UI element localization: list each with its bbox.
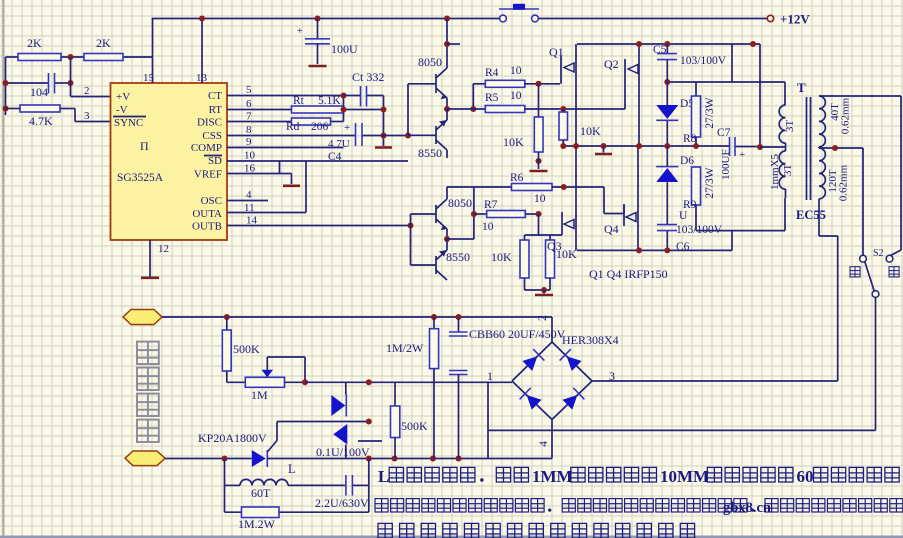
svg-text:6: 6 (246, 98, 252, 110)
svg-text:10: 10 (510, 90, 522, 102)
svg-text:1MM: 1MM (532, 467, 573, 486)
svg-text:Q4: Q4 (604, 222, 619, 236)
svg-text:0.1U/100V: 0.1U/100V (316, 445, 370, 459)
svg-text:C7: C7 (717, 127, 731, 139)
svg-text:10: 10 (482, 221, 494, 233)
svg-text:Q1 Q4 IRFP150: Q1 Q4 IRFP150 (589, 267, 668, 281)
svg-text:Ct 332: Ct 332 (352, 70, 384, 84)
svg-text:60T: 60T (251, 486, 271, 500)
svg-text:1: 1 (487, 369, 493, 383)
svg-text:D6: D6 (680, 155, 694, 167)
svg-text:10K: 10K (503, 135, 524, 149)
svg-text:10: 10 (244, 150, 256, 162)
svg-text:10: 10 (510, 65, 522, 77)
svg-text:1M/2W: 1M/2W (386, 341, 424, 355)
svg-text:SD: SD (208, 155, 222, 167)
svg-text:10K: 10K (580, 124, 601, 138)
svg-text:4: 4 (536, 441, 550, 447)
svg-text:U: U (679, 210, 688, 222)
svg-text:RT: RT (209, 104, 223, 116)
svg-text:0.62mm: 0.62mm (840, 97, 852, 134)
svg-text:104: 104 (30, 85, 48, 99)
svg-text:1mmX5: 1mmX5 (769, 153, 781, 190)
svg-text:R5: R5 (485, 92, 499, 104)
svg-text:L: L (378, 467, 389, 486)
svg-text:CSS: CSS (202, 130, 222, 142)
svg-text:OUTA: OUTA (192, 208, 222, 220)
svg-text:27/3W: 27/3W (704, 97, 716, 128)
svg-text:5.1K: 5.1K (318, 95, 341, 107)
svg-text:Rd: Rd (286, 121, 300, 133)
svg-text:10K: 10K (491, 250, 512, 264)
svg-text:CT: CT (208, 90, 222, 102)
svg-text:3T: 3T (784, 120, 796, 133)
svg-text:2K: 2K (27, 36, 42, 50)
svg-text:EC55: EC55 (796, 208, 826, 222)
svg-text:8550: 8550 (418, 146, 442, 160)
svg-text:2K: 2K (96, 36, 111, 50)
svg-text:9: 9 (246, 136, 252, 148)
svg-text:T: T (797, 80, 806, 95)
svg-text:R4: R4 (485, 67, 499, 79)
svg-text:R8: R8 (683, 133, 697, 145)
svg-text:COMP: COMP (191, 142, 222, 154)
svg-text:Q3: Q3 (547, 239, 562, 253)
svg-text:500K: 500K (233, 342, 260, 356)
svg-text:8050: 8050 (418, 55, 442, 69)
svg-text:+V: +V (116, 91, 130, 103)
svg-text:206: 206 (311, 121, 329, 133)
svg-text:R6: R6 (510, 172, 524, 184)
svg-text:П: П (140, 139, 149, 153)
svg-text:SG3525A: SG3525A (117, 172, 164, 184)
svg-text:3: 3 (84, 110, 90, 122)
svg-text:-V: -V (116, 104, 128, 116)
svg-text:4: 4 (246, 189, 252, 201)
svg-text:SYNC: SYNC (114, 117, 143, 129)
svg-text:+12V: +12V (780, 12, 810, 27)
svg-text:OUTB: OUTB (192, 221, 222, 233)
svg-text:S2: S2 (873, 248, 884, 259)
svg-text:0.62mm: 0.62mm (838, 164, 850, 201)
svg-text:8550: 8550 (446, 250, 470, 264)
svg-text:C5: C5 (653, 44, 667, 56)
svg-text:5: 5 (246, 84, 252, 96)
svg-text:100U: 100U (331, 42, 358, 56)
svg-text:R7: R7 (484, 199, 498, 211)
svg-text:2: 2 (84, 85, 90, 97)
svg-text:12: 12 (158, 243, 169, 255)
svg-text:27/3W: 27/3W (704, 167, 716, 198)
svg-text:8050: 8050 (448, 196, 472, 210)
svg-text:L: L (288, 462, 296, 476)
svg-text:8: 8 (246, 124, 252, 136)
svg-text:2: 2 (535, 315, 549, 321)
svg-text:DISC: DISC (197, 117, 222, 129)
svg-text:100UF: 100UF (720, 149, 732, 180)
svg-text:500K: 500K (401, 419, 428, 433)
svg-text:KP20A1800V: KP20A1800V (198, 431, 267, 445)
svg-text:3T: 3T (782, 164, 794, 177)
svg-text:Q1: Q1 (549, 45, 564, 59)
svg-text:+: + (739, 149, 745, 161)
svg-text:+: + (344, 122, 350, 134)
svg-text:1M.2W: 1M.2W (238, 517, 276, 531)
svg-text:2.2U/630V: 2.2U/630V (315, 496, 369, 510)
svg-text:Q2: Q2 (604, 57, 619, 71)
svg-text:60: 60 (797, 467, 814, 486)
svg-text:+: + (297, 25, 303, 37)
svg-text:gbx8.cn: gbx8.cn (723, 500, 771, 516)
svg-text:OSC: OSC (201, 195, 222, 207)
svg-text:1M: 1M (251, 388, 268, 402)
svg-text:10MM: 10MM (660, 467, 709, 486)
svg-text:HER308X4: HER308X4 (562, 333, 619, 347)
svg-text:4.7K: 4.7K (29, 114, 53, 128)
svg-text:103/100V: 103/100V (680, 55, 727, 67)
svg-text:VREF: VREF (194, 169, 222, 181)
svg-text:10: 10 (534, 193, 546, 205)
svg-text:CBB60 20UF/450V: CBB60 20UF/450V (469, 327, 566, 341)
svg-text:Rt: Rt (293, 95, 305, 107)
